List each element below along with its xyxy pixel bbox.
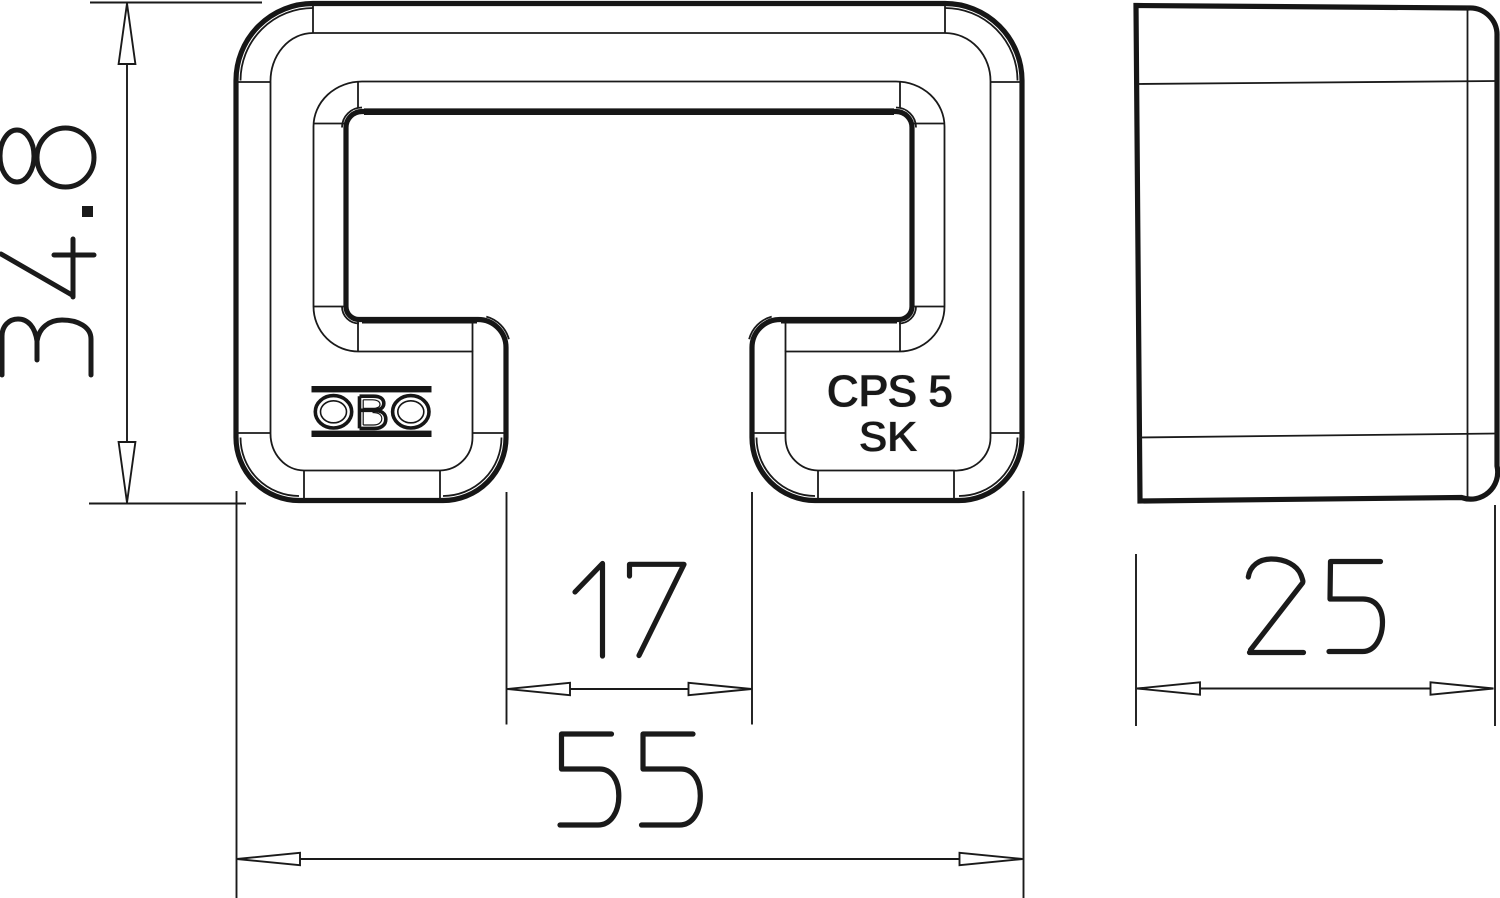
svg-text:CPS 5: CPS 5: [826, 365, 952, 417]
svg-text:SK: SK: [858, 413, 918, 462]
